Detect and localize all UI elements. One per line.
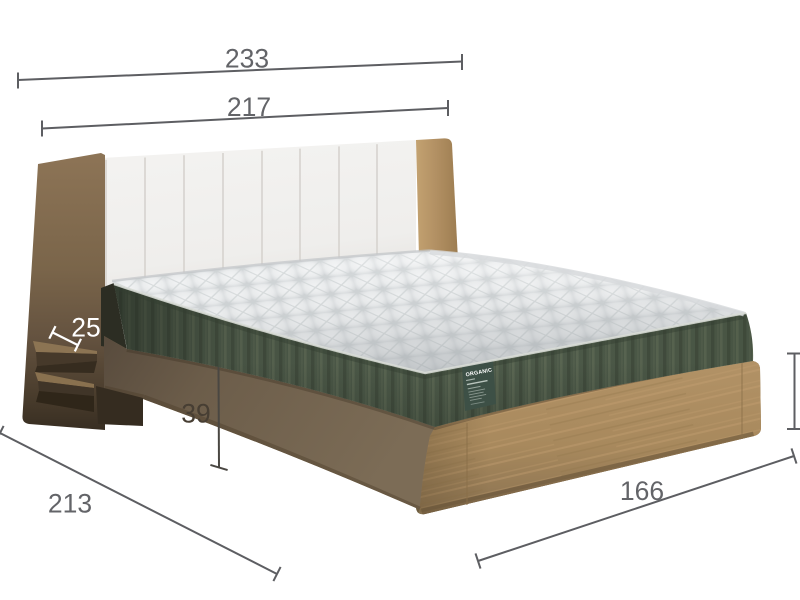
svg-text:39: 39	[181, 399, 210, 429]
svg-text:213: 213	[48, 489, 92, 519]
svg-text:25: 25	[71, 313, 100, 343]
svg-text:166: 166	[620, 476, 664, 506]
svg-text:217: 217	[227, 92, 271, 122]
svg-text:233: 233	[225, 44, 269, 74]
